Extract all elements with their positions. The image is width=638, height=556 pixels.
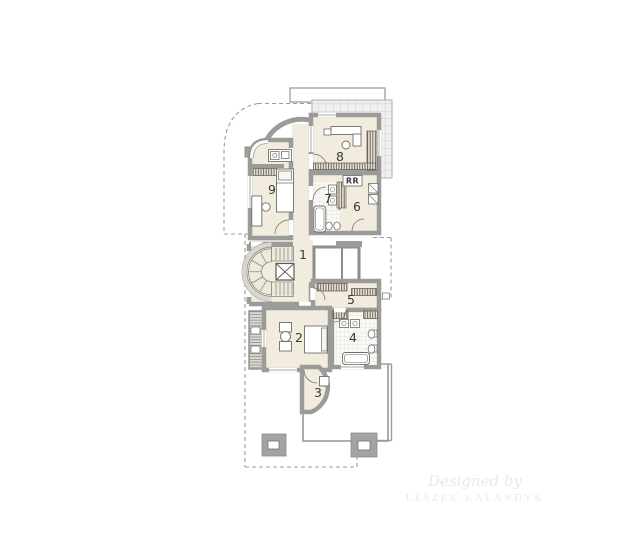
door-gap (309, 154, 313, 169)
toilet (368, 330, 377, 338)
door-gap (289, 220, 293, 235)
wardrobe-hatch (313, 163, 375, 170)
room-label-1: 1 (299, 247, 307, 262)
room-label-4: 4 (349, 330, 357, 345)
door-gap (334, 308, 346, 312)
bed (305, 326, 328, 353)
room-8-block (309, 113, 381, 172)
chair (262, 203, 270, 211)
room-label-8: 8 (336, 149, 344, 164)
floor-plan-canvas: RR (0, 0, 638, 556)
round-table (281, 332, 291, 342)
wardrobe-hatch (364, 311, 378, 319)
door-gap (299, 302, 311, 306)
chimney (351, 433, 377, 457)
sink (271, 152, 280, 160)
sink (351, 320, 360, 328)
room-label-3: 3 (314, 385, 322, 400)
stair-flight (272, 247, 294, 262)
appliance-label: RR (346, 177, 359, 186)
desk (252, 196, 262, 226)
bidet (368, 345, 377, 353)
vent-box (383, 293, 390, 299)
armchair (280, 342, 292, 352)
chimney (262, 434, 286, 456)
door-gap (310, 288, 315, 300)
bathtub (314, 206, 326, 232)
room-label-2: 2 (295, 330, 303, 345)
bed (277, 169, 294, 212)
balcony-floor (249, 311, 263, 369)
watermark-script-line: Designed by (385, 472, 565, 490)
room-label-6: 6 (353, 199, 361, 214)
stair-flight (272, 282, 294, 297)
room-2-block (249, 308, 330, 372)
room-label-5: 5 (347, 292, 355, 307)
room-label-9: 9 (268, 182, 276, 197)
door-gap (309, 186, 313, 200)
toilet (326, 222, 332, 230)
rooms-7-6-block: RR (309, 173, 379, 233)
wardrobe-hatch (317, 284, 347, 292)
room-label-7: 7 (324, 191, 332, 206)
designer-watermark: Designed by LESZEK KALANDYK (385, 472, 565, 504)
bathtub (343, 353, 370, 365)
void-opening (314, 241, 362, 281)
bidet (334, 222, 340, 230)
watermark-name-line: LESZEK KALANDYK (385, 493, 565, 504)
wardrobe-hatch (352, 289, 377, 296)
sink (340, 320, 349, 328)
elevator-shaft (276, 264, 294, 281)
wardrobe-hatch (253, 169, 277, 176)
armchair (280, 323, 292, 333)
chair (342, 141, 350, 149)
